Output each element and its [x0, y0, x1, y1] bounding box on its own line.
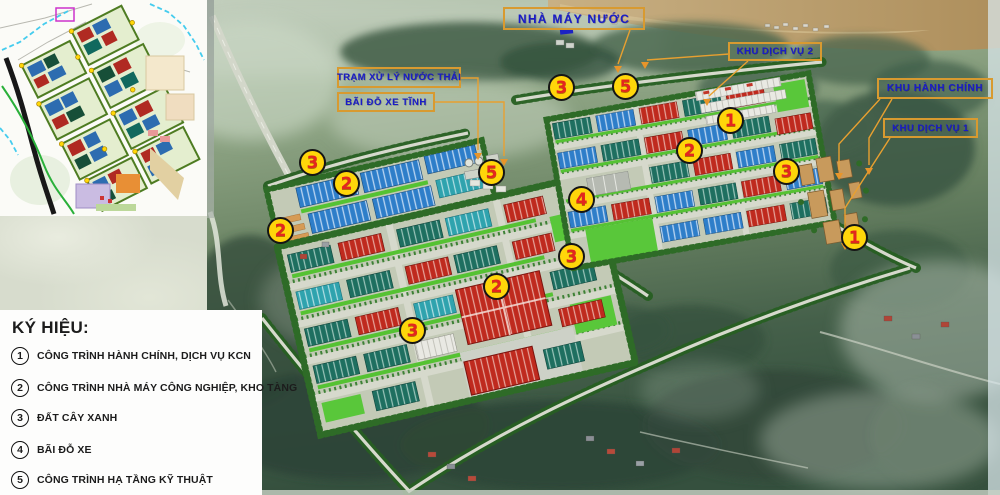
legend-item: 3 ĐẤT CÂY XANH — [11, 407, 117, 429]
map-label-khu-hanh-chinh: KHU HÀNH CHÍNH — [877, 78, 993, 99]
faded-area — [0, 216, 207, 312]
right-haze — [988, 0, 1000, 495]
legend-item: 2 CÔNG TRÌNH NHÀ MÁY CÔNG NGHIỆP, KHO TÀ… — [11, 377, 297, 399]
map-marker: 3 — [299, 149, 326, 176]
map-label-khu-dich-vu-1: KHU DỊCH VỤ 1 — [883, 118, 978, 138]
legend-item-label: BÃI ĐỖ XE — [37, 444, 92, 456]
map-marker: 3 — [399, 317, 426, 344]
map-label-bai-do-xe-tinh: BÃI ĐỖ XE TĨNH — [337, 92, 435, 112]
map-marker: 2 — [483, 273, 510, 300]
legend-panel: KÝ HIỆU: 1 CÔNG TRÌNH HÀNH CHÍNH, DỊCH V… — [0, 310, 262, 495]
legend-item-label: CÔNG TRÌNH HÀNH CHÍNH, DỊCH VỤ KCN — [37, 350, 251, 362]
legend-item: 5 CÔNG TRÌNH HẠ TẦNG KỸ THUẬT — [11, 469, 213, 491]
map-label-nha-may-nuoc: NHÀ MÁY NƯỚC — [503, 7, 645, 30]
inset-plan-map — [0, 0, 207, 216]
map-marker: 3 — [558, 243, 585, 270]
legend-item-number: 5 — [11, 471, 29, 489]
legend-item-number: 3 — [11, 409, 29, 427]
map-marker: 2 — [267, 217, 294, 244]
map-marker: 4 — [568, 186, 595, 213]
legend-item: 1 CÔNG TRÌNH HÀNH CHÍNH, DỊCH VỤ KCN — [11, 345, 251, 367]
legend-title: KÝ HIỆU: — [12, 318, 89, 338]
map-label-khu-dich-vu-2: KHU DỊCH VỤ 2 — [728, 42, 822, 61]
map-label-tram-xu-ly-nuoc-thai: TRẠM XỬ LÝ NƯỚC THẢI — [337, 67, 461, 88]
map-marker: 1 — [717, 107, 744, 134]
map-marker: 2 — [333, 170, 360, 197]
legend-item-number: 4 — [11, 441, 29, 459]
map-marker: 2 — [676, 137, 703, 164]
inset-shadow — [207, 0, 214, 218]
map-marker: 3 — [548, 74, 575, 101]
screenshot-root: KÝ HIỆU: 1 CÔNG TRÌNH HÀNH CHÍNH, DỊCH V… — [0, 0, 1000, 495]
map-marker: 5 — [612, 73, 639, 100]
bottom-edge — [255, 490, 1000, 495]
map-marker: 5 — [478, 159, 505, 186]
legend-item-label: CÔNG TRÌNH HẠ TẦNG KỸ THUẬT — [37, 474, 213, 486]
legend-item-number: 2 — [11, 379, 29, 397]
legend-item-number: 1 — [11, 347, 29, 365]
legend-item-label: ĐẤT CÂY XANH — [37, 412, 117, 424]
legend-item-label: CÔNG TRÌNH NHÀ MÁY CÔNG NGHIỆP, KHO TÀNG — [37, 382, 297, 394]
map-marker: 3 — [773, 158, 800, 185]
legend-item: 4 BÃI ĐỖ XE — [11, 439, 92, 461]
map-marker: 1 — [841, 224, 868, 251]
